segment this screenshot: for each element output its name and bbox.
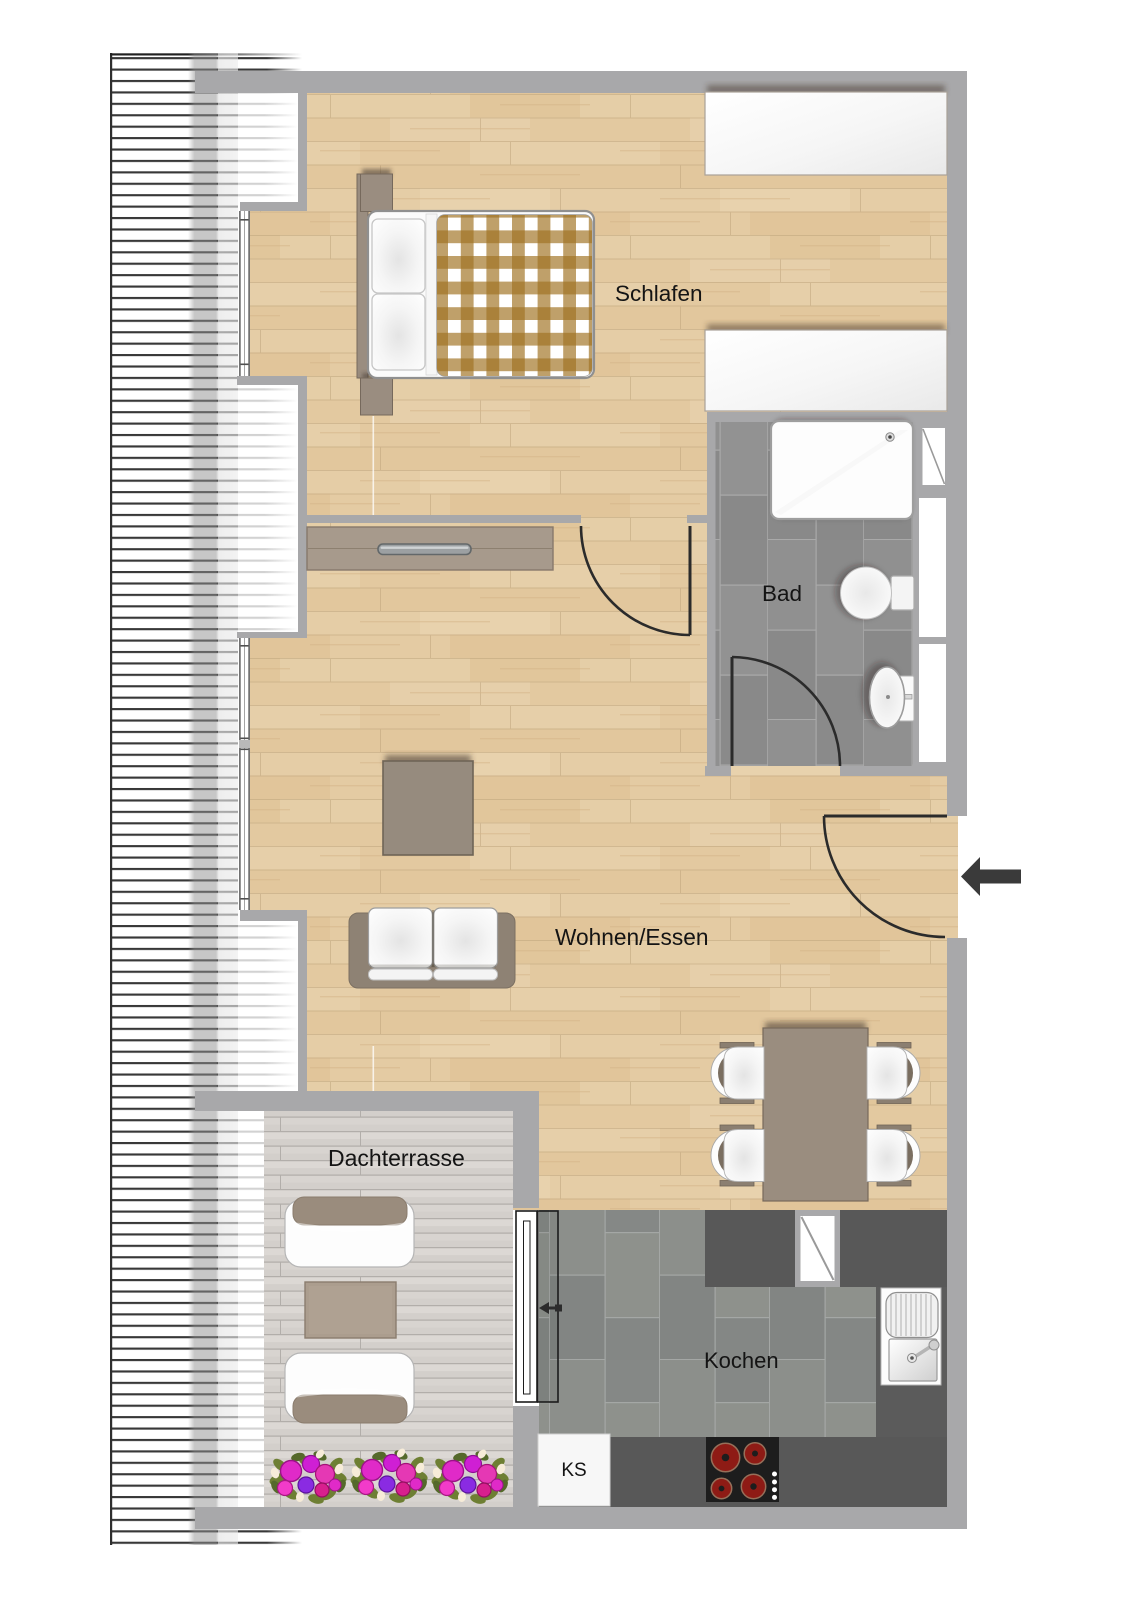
svg-text:Wohnen/Essen: Wohnen/Essen bbox=[555, 924, 708, 950]
svg-text:Schlafen: Schlafen bbox=[615, 281, 703, 306]
svg-text:KS: KS bbox=[561, 1460, 586, 1481]
svg-text:Dachterrasse: Dachterrasse bbox=[328, 1145, 465, 1171]
svg-text:Kochen: Kochen bbox=[704, 1348, 779, 1373]
svg-text:Bad: Bad bbox=[762, 581, 802, 606]
